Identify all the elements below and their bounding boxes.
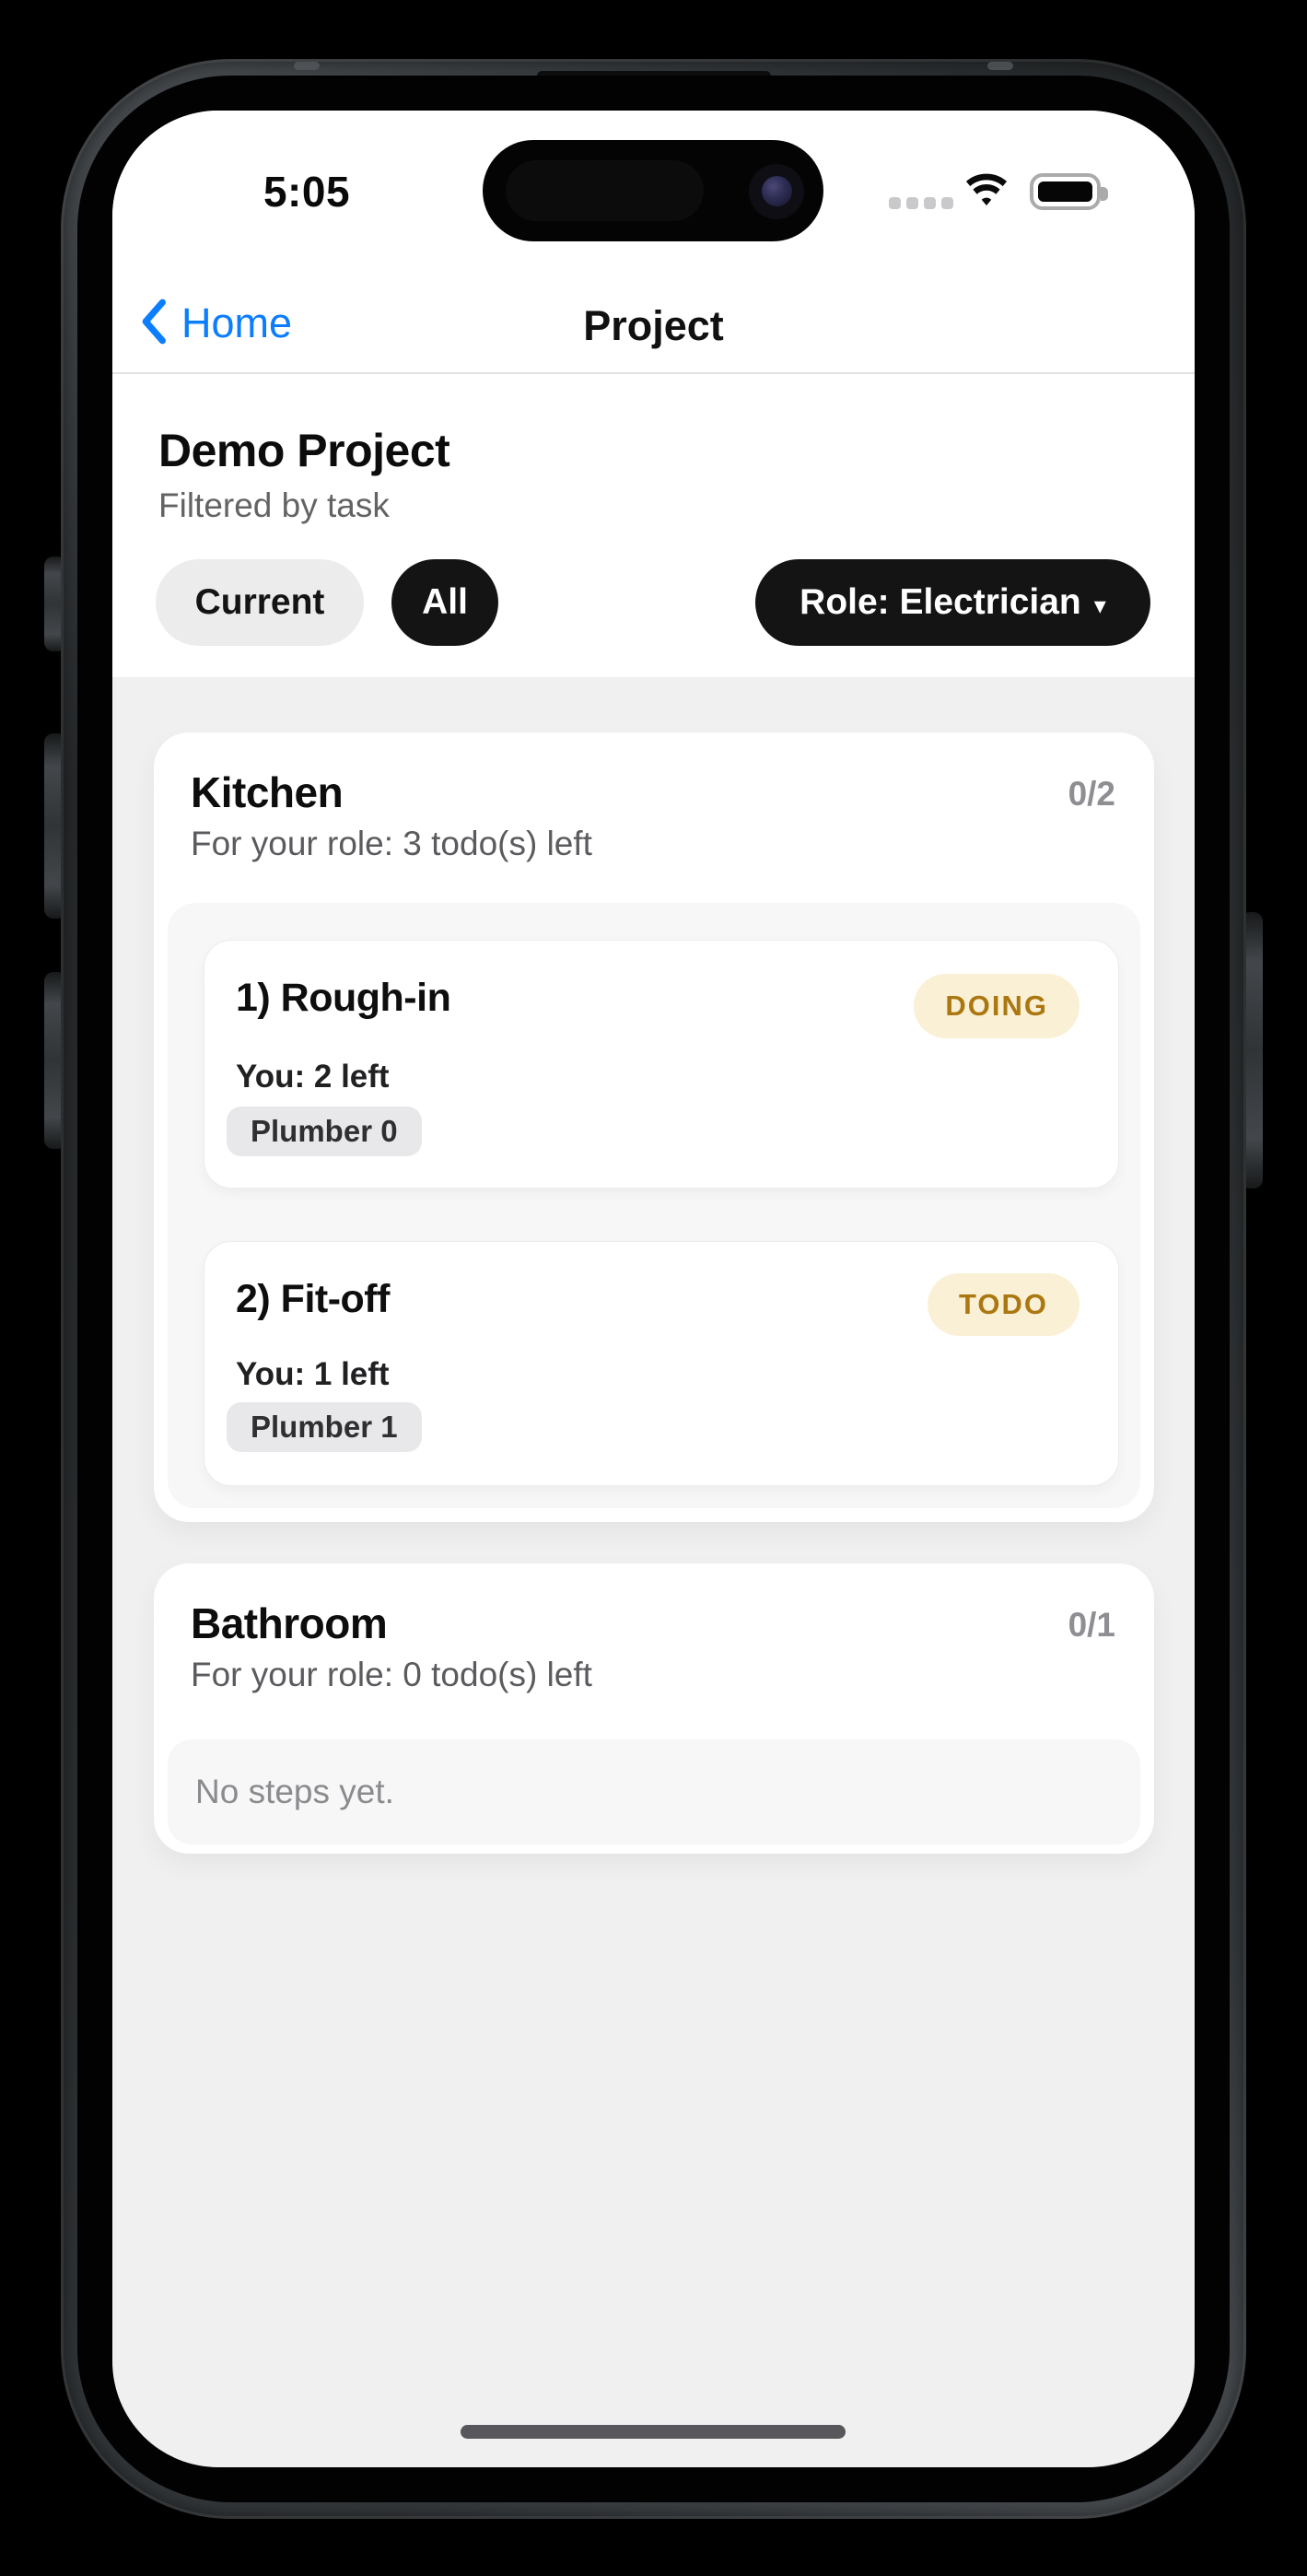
filter-current-button[interactable]: Current (156, 559, 364, 646)
filter-current-label: Current (195, 582, 325, 623)
antenna-line (294, 62, 320, 70)
section-title: Kitchen (191, 767, 343, 817)
phone-frame: 5:05 (61, 59, 1246, 2519)
battery-icon (1030, 173, 1101, 210)
filter-all-label: All (422, 582, 468, 623)
project-subtitle: Filtered by task (158, 486, 390, 525)
nav-separator (112, 372, 1195, 374)
section-card-bathroom: Bathroom 0/1 For your role: 0 todo(s) le… (154, 1563, 1154, 1854)
dropdown-caret-icon: ▾ (1094, 593, 1106, 617)
app-screen: 5:05 (112, 111, 1195, 2467)
page-title: Project (112, 302, 1195, 350)
steps-panel-empty: No steps yet. (168, 1739, 1140, 1844)
step-title: 1) Rough-in (236, 976, 450, 1021)
home-indicator[interactable] (461, 2425, 846, 2439)
steps-panel: 1) Rough-in DOING You: 2 left Plumber 0 … (168, 903, 1140, 1508)
role-dropdown-button[interactable]: Role: Electrician ▾ (755, 559, 1150, 646)
section-progress-badge: 0/2 (1068, 775, 1115, 814)
wifi-icon (963, 171, 1010, 208)
filter-all-button[interactable]: All (391, 559, 498, 646)
section-title: Bathroom (191, 1598, 387, 1648)
section-role-line: For your role: 3 todo(s) left (191, 825, 592, 863)
section-card-kitchen: Kitchen 0/2 For your role: 3 todo(s) lef… (154, 732, 1154, 1522)
step-you-line: You: 1 left (236, 1356, 390, 1393)
status-time: 5:05 (205, 164, 408, 219)
section-role-line: For your role: 0 todo(s) left (191, 1656, 592, 1694)
island-speaker (506, 160, 704, 221)
step-title: 2) Fit-off (236, 1277, 390, 1322)
empty-state-text: No steps yet. (195, 1739, 394, 1844)
project-title: Demo Project (158, 424, 449, 477)
front-camera-icon (749, 164, 804, 219)
step-role-chip: Plumber 1 (227, 1402, 422, 1452)
section-progress-badge: 0/1 (1068, 1606, 1115, 1645)
antenna-line (987, 62, 1013, 70)
step-card-fit-off[interactable]: 2) Fit-off TODO You: 1 left Plumber 1 (204, 1241, 1119, 1486)
dynamic-island (483, 140, 823, 241)
cellular-signal-icon (889, 197, 963, 210)
role-dropdown-label: Role: Electrician (799, 582, 1081, 623)
step-you-line: You: 2 left (236, 1059, 390, 1095)
canvas: { "status_bar": { "time": "5:05", "cellu… (0, 0, 1307, 2576)
step-status-badge: DOING (914, 974, 1079, 1038)
step-status-badge: TODO (928, 1273, 1079, 1336)
step-role-chip: Plumber 0 (227, 1107, 422, 1156)
step-card-rough-in[interactable]: 1) Rough-in DOING You: 2 left Plumber 0 (204, 940, 1119, 1188)
